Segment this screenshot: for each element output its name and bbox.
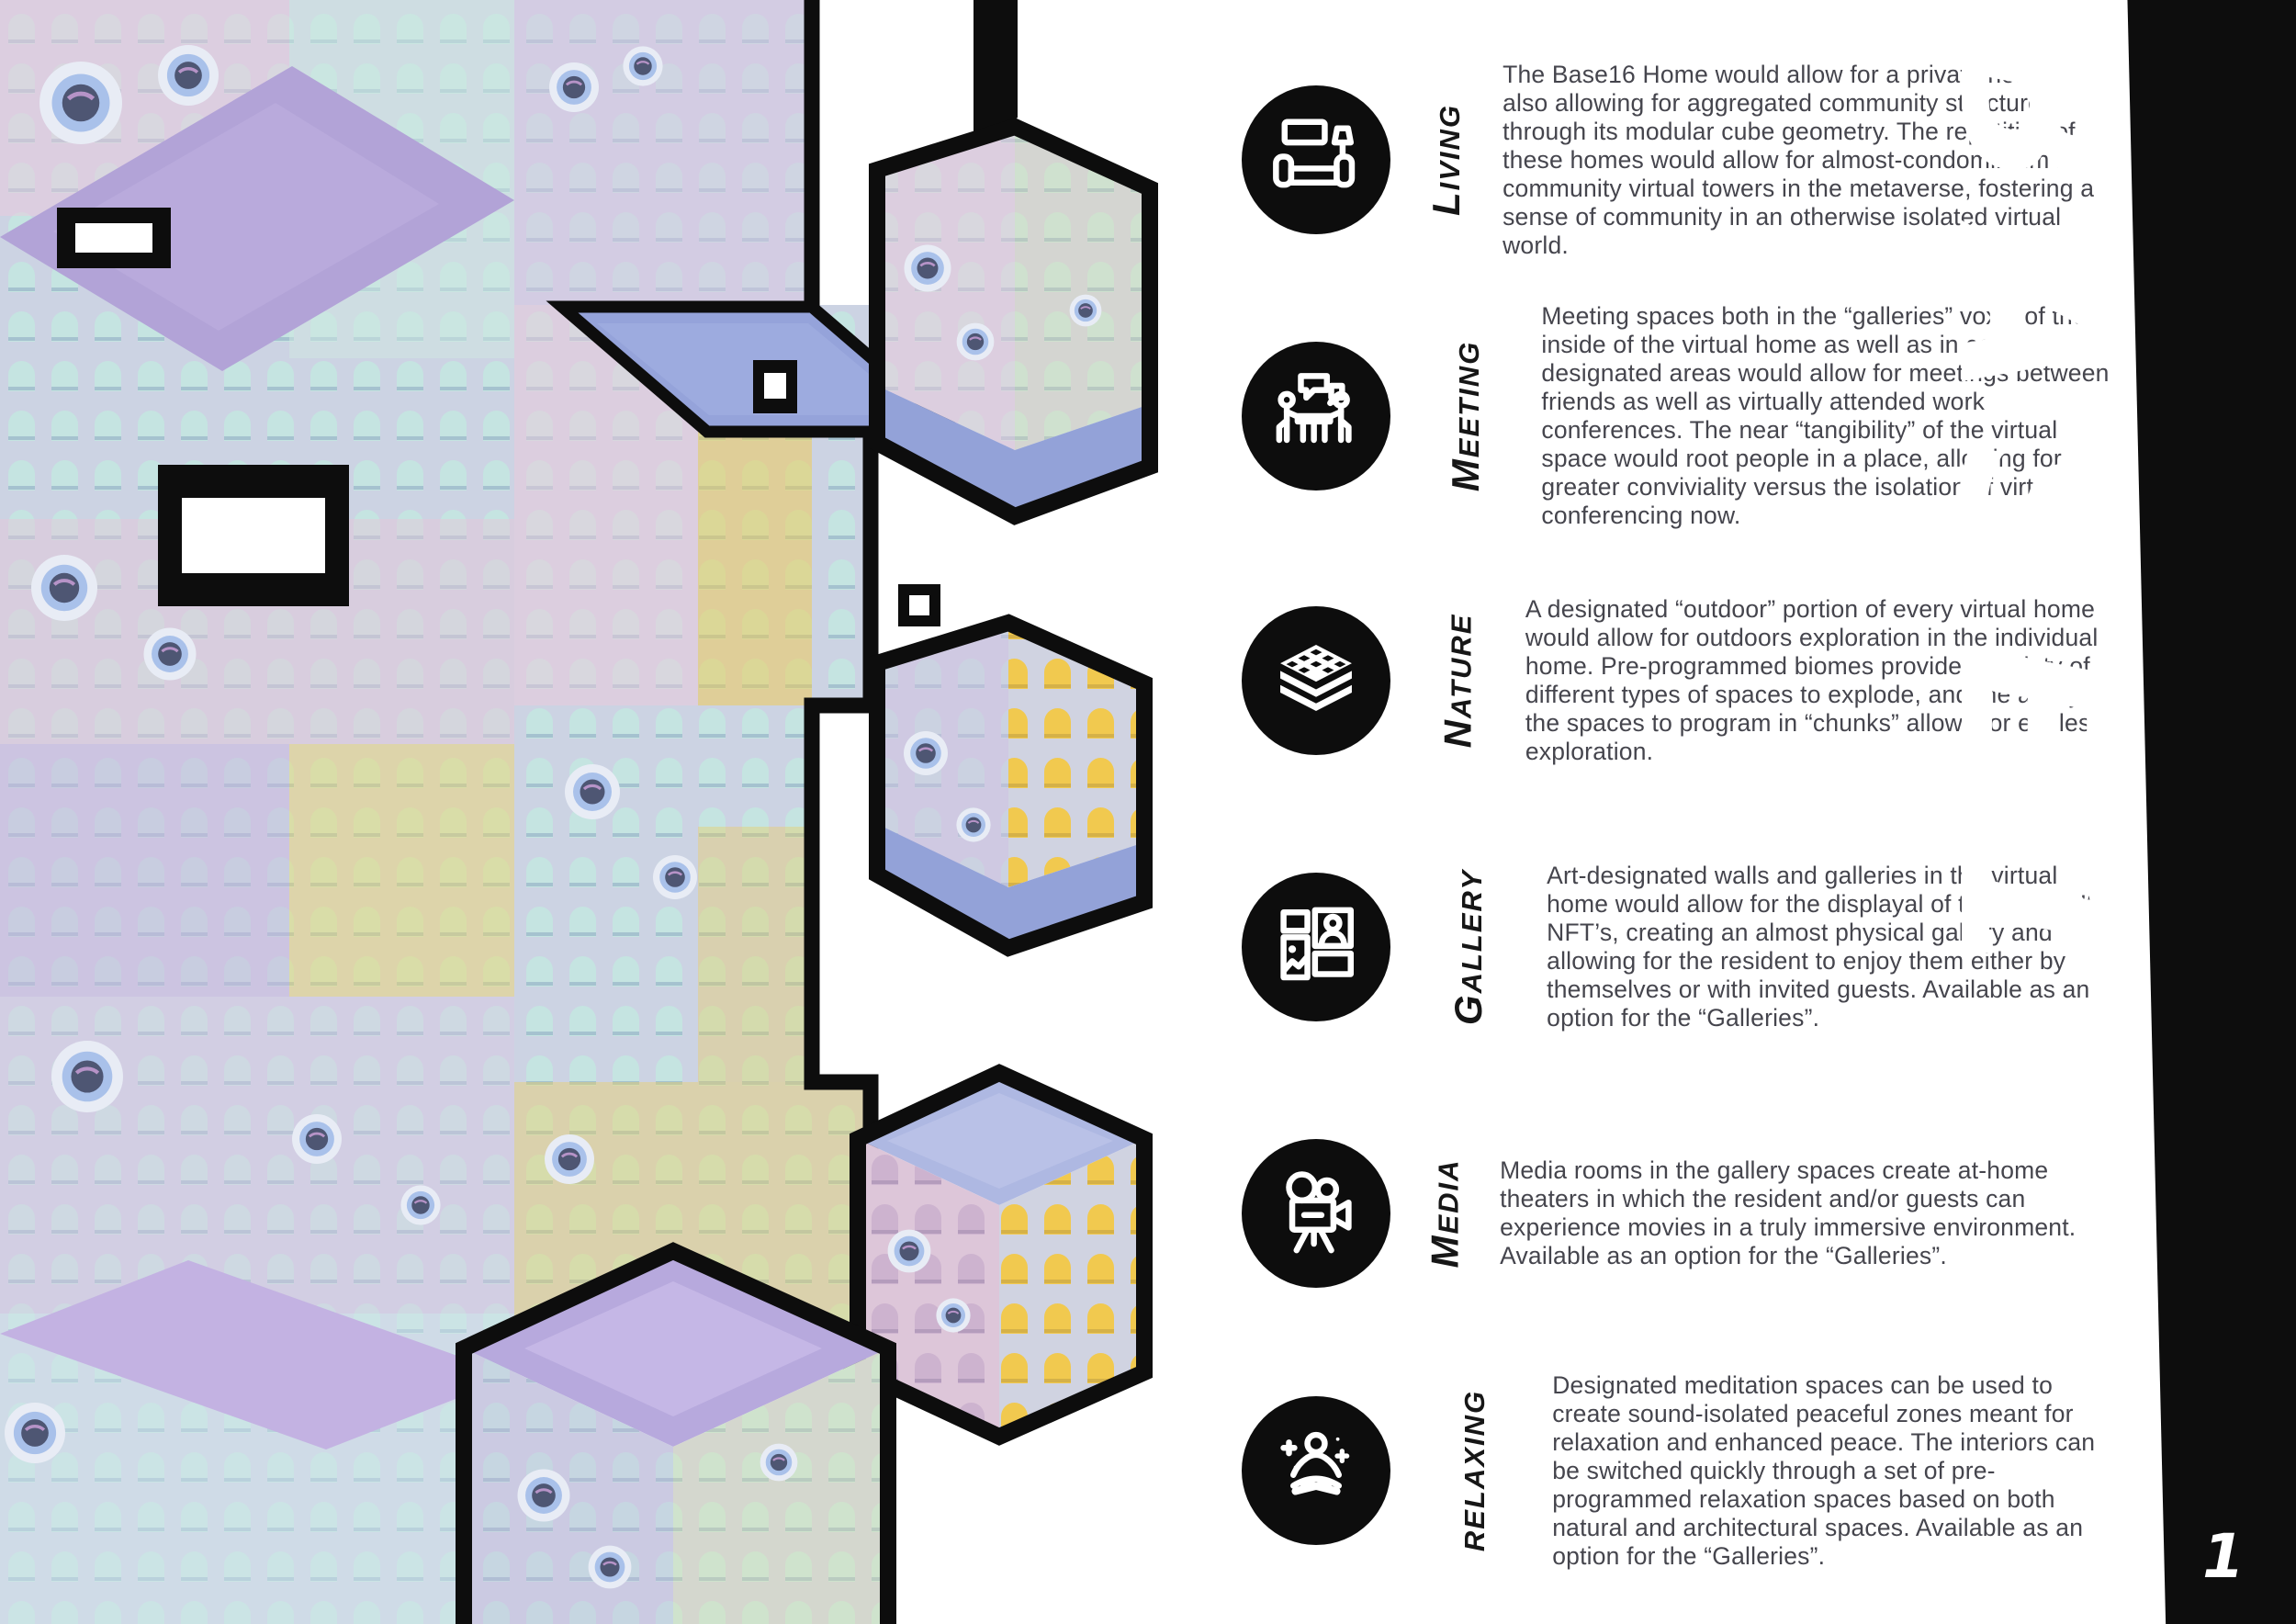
media-camera-icon <box>1242 1139 1390 1288</box>
feature-label-relaxing: RELAXING <box>1449 1390 1493 1551</box>
portfolio-page: LIVING The Base16 Home would allow for a… <box>0 0 2296 1624</box>
gallery-frames-icon <box>1242 873 1390 1021</box>
relaxing-meditation-icon <box>1242 1396 1390 1545</box>
left-tower-mass <box>0 0 514 1624</box>
floating-cube-top <box>877 127 1150 516</box>
feature-label-media: MEDIA <box>1424 1158 1468 1268</box>
living-icon <box>1242 85 1390 234</box>
feature-label-gallery: GALLERY <box>1446 869 1491 1025</box>
floating-cube-middle <box>877 584 1144 948</box>
meeting-icon <box>1242 342 1390 491</box>
feature-label-living: LIVING <box>1424 104 1469 216</box>
metaverse-towers-illustration <box>0 0 1203 1624</box>
feature-text-relaxing: Designated meditation spaces can be used… <box>1552 1371 2123 1571</box>
feature-section-relaxing: RELAXING Designated meditation spaces ca… <box>1242 1324 2123 1618</box>
brand-title: BASE16 <box>1929 28 2142 1215</box>
iso-cube-low-right <box>858 1073 1144 1437</box>
feature-label-nature: NATURE <box>1435 614 1480 749</box>
feature-label-meeting: MEETING <box>1444 341 1488 491</box>
nature-layers-icon <box>1242 606 1390 755</box>
page-number: 1 <box>2202 1521 2245 1592</box>
